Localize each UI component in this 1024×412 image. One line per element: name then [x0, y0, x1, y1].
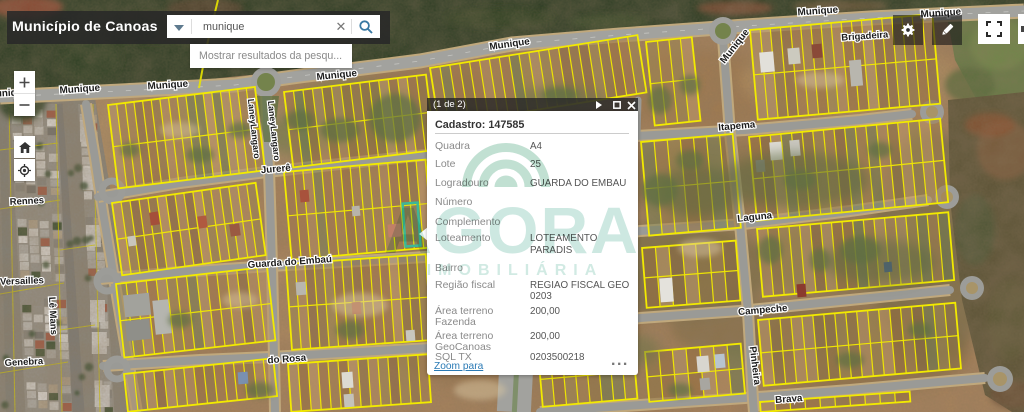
svg-text:Versailles: Versailles	[0, 275, 44, 288]
svg-text:Brava: Brava	[775, 393, 803, 406]
svg-text:Genebra: Genebra	[4, 356, 44, 369]
svg-text:Rennes: Rennes	[9, 195, 44, 208]
svg-text:Lê Mans: Lê Mans	[46, 297, 59, 336]
